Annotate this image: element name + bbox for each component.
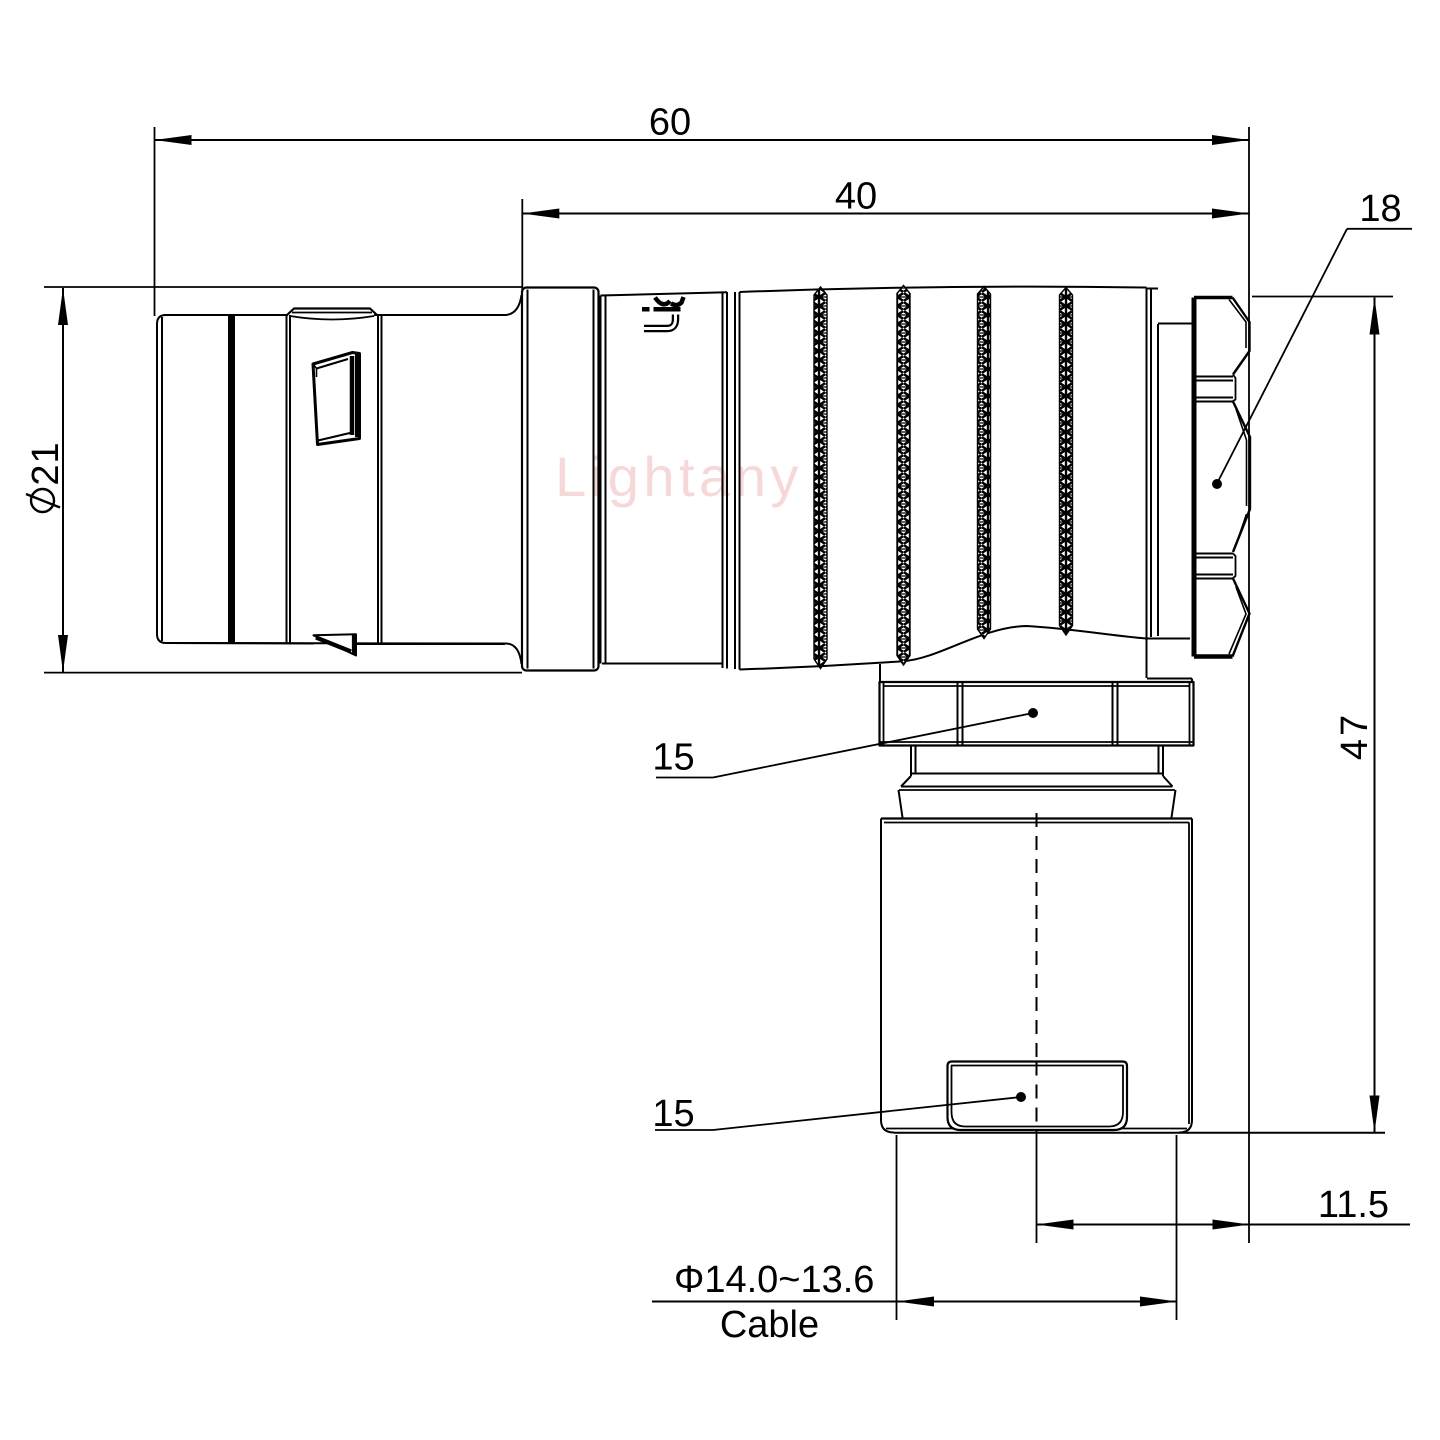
svg-text:15: 15 xyxy=(652,737,694,779)
svg-text:60: 60 xyxy=(649,102,691,144)
svg-text:21: 21 xyxy=(25,441,67,485)
svg-text:Φ14.0~13.6: Φ14.0~13.6 xyxy=(674,1259,874,1301)
svg-text:Lightany: Lightany xyxy=(555,445,803,508)
svg-text:11.5: 11.5 xyxy=(1318,1184,1389,1226)
svg-text:40: 40 xyxy=(835,176,877,218)
svg-text:15: 15 xyxy=(652,1093,694,1135)
svg-text:Cable: Cable xyxy=(720,1304,819,1346)
svg-text:18: 18 xyxy=(1359,188,1401,230)
svg-text:47: 47 xyxy=(1334,712,1376,760)
